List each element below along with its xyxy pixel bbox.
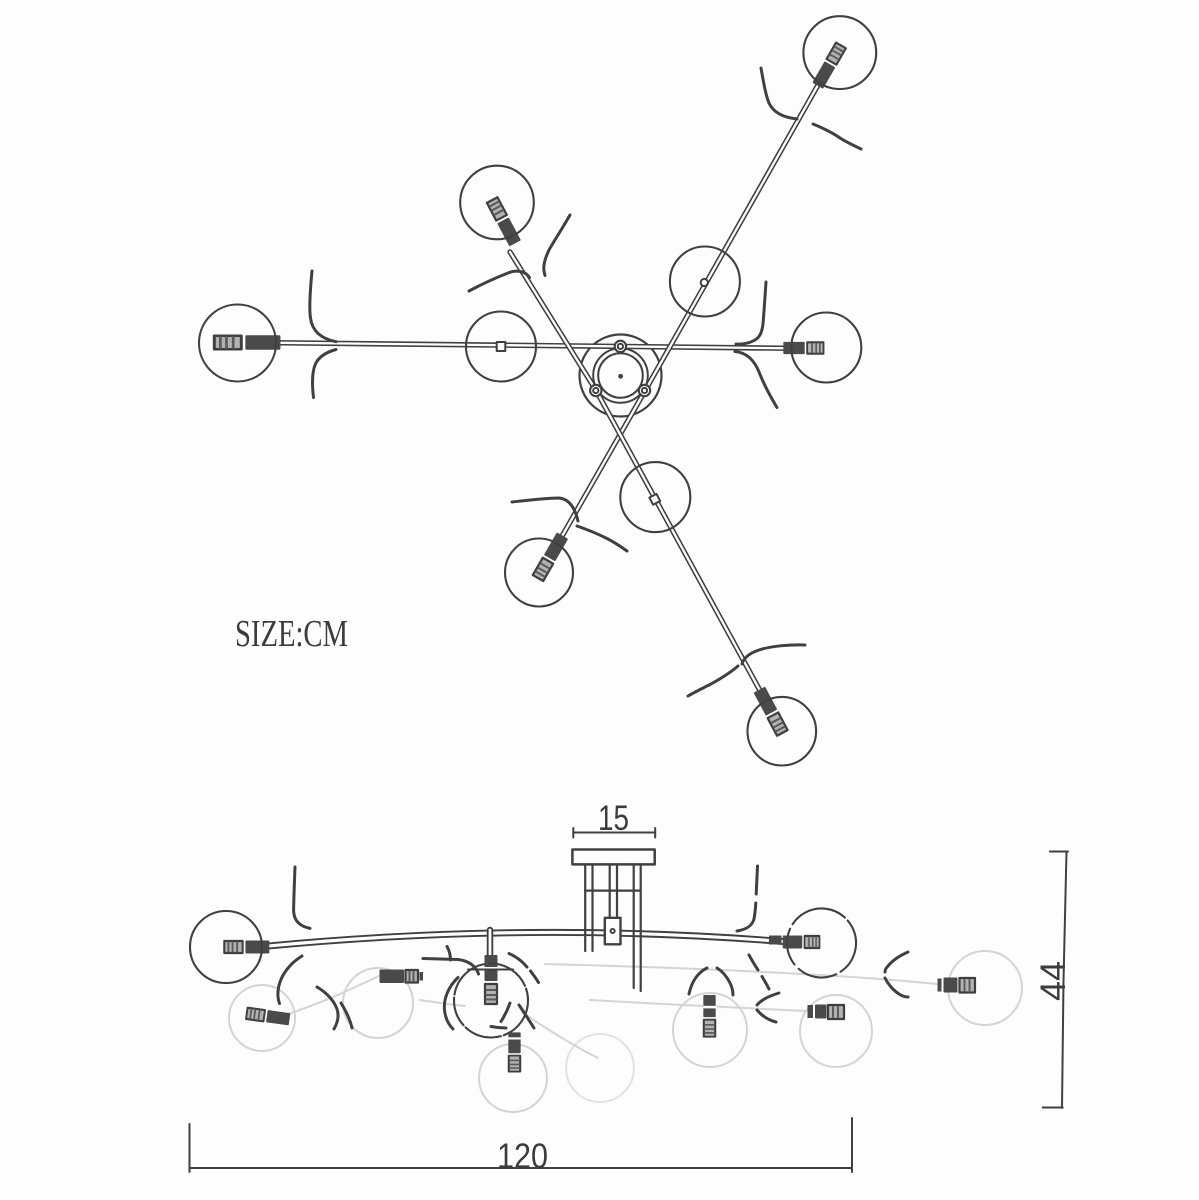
svg-text:44: 44 <box>1034 961 1073 1001</box>
svg-text:SIZE:CM: SIZE:CM <box>235 613 348 655</box>
svg-text:120: 120 <box>497 1137 548 1176</box>
svg-text:15: 15 <box>598 799 629 838</box>
